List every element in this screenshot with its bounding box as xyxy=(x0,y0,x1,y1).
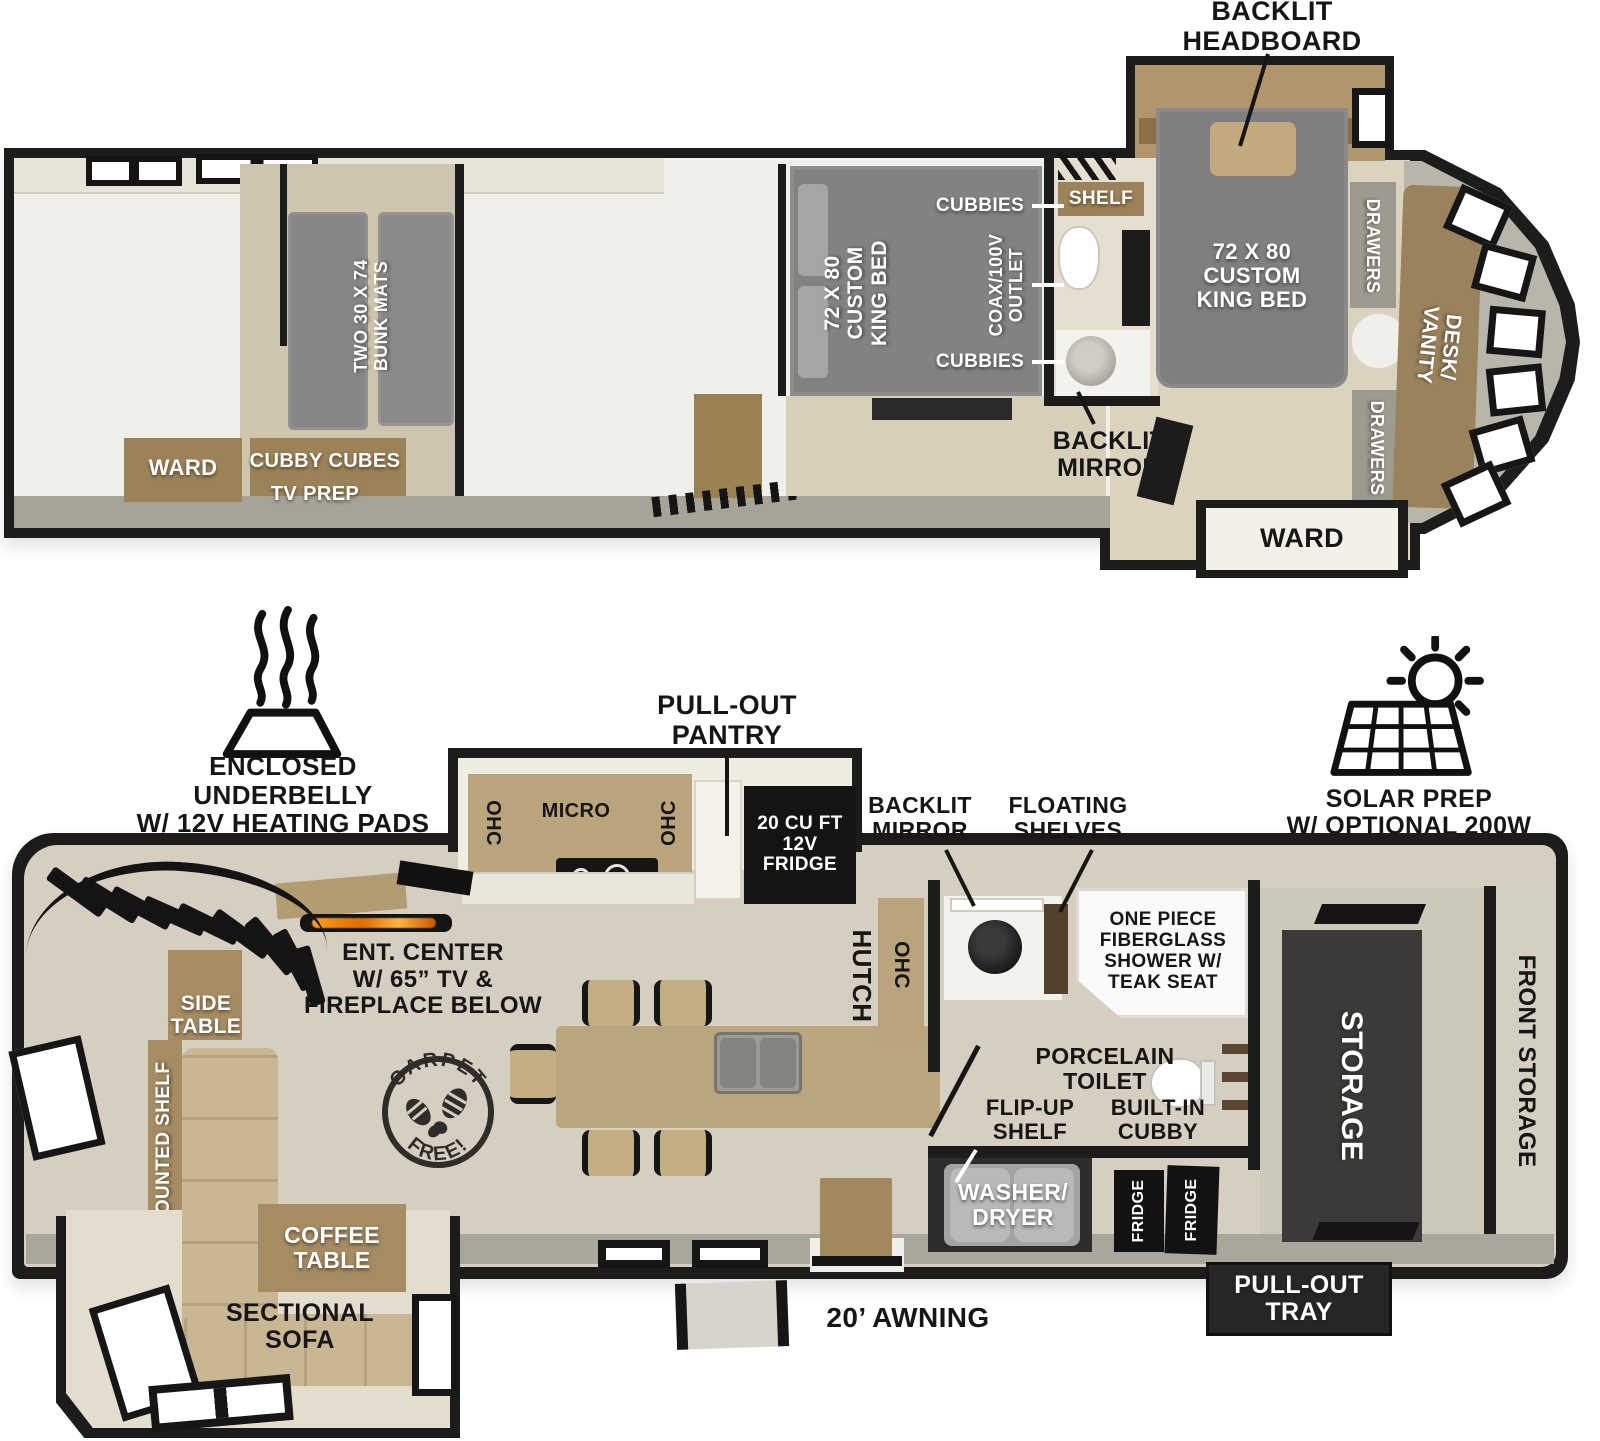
cubby-cubes-label: CUBBY CUBES xyxy=(232,446,418,476)
bunk-room-right-wall xyxy=(455,164,464,496)
floating-shelves xyxy=(1044,904,1068,994)
exterior-fridge-label: FRIDGE xyxy=(1129,1173,1149,1249)
entry-door-sill xyxy=(812,1256,902,1266)
dining-chair xyxy=(510,1044,556,1104)
window-icon xyxy=(1352,88,1392,148)
drawers-top-label: DRAWERS xyxy=(1359,186,1385,306)
dining-chair xyxy=(654,1130,712,1176)
hatch-shelf-icon xyxy=(1058,152,1116,180)
master-bed-label: 72 X 80 CUSTOM KING BED xyxy=(1172,228,1332,324)
dining-chair xyxy=(582,1130,640,1176)
floating-shelves-label: FLOATING SHELVES xyxy=(995,788,1141,848)
rear-bed-label: 72 X 80 CUSTOM KING BED xyxy=(814,218,898,368)
window-icon xyxy=(692,1240,768,1268)
window-icon xyxy=(1486,363,1547,417)
carpet-free-stamp: CARPET FREE! xyxy=(378,1052,498,1172)
upper-bath-bottom-wall xyxy=(1044,396,1160,406)
bath-vessel-sink xyxy=(968,920,1022,974)
entry-steps xyxy=(675,1280,789,1350)
pantry-cabinet xyxy=(694,780,742,900)
pull-out-pantry-label: PULL-OUT PANTRY xyxy=(627,688,827,754)
master-bed-pillow xyxy=(1210,122,1296,176)
storage-vent xyxy=(1312,1222,1419,1240)
cubbies-top-label: CUBBIES xyxy=(930,194,1030,218)
island-sink-basin xyxy=(720,1038,756,1088)
rv-floorplan-canvas: TWO 30 X 74 BUNK MATS WARD CUBBY CUBES T… xyxy=(0,0,1600,1441)
upper-toilet xyxy=(1058,226,1100,290)
tv-bench xyxy=(872,398,1012,420)
upper-bath-cabinet xyxy=(1122,230,1150,326)
awning-label: 20’ AWNING xyxy=(788,1298,1028,1338)
cubbies-bottom-label: CUBBIES xyxy=(930,350,1030,374)
master-ward-label: WARD xyxy=(1206,510,1398,568)
sectional-sofa-label: SECTIONAL SOFA xyxy=(200,1296,400,1358)
solar-prep-icon xyxy=(1316,636,1492,788)
pull-out-tray-label: PULL-OUT TRAY xyxy=(1208,1266,1390,1332)
hutch-label: HUTCH xyxy=(846,911,878,1041)
bunk-ward-label: WARD xyxy=(126,448,240,488)
entry-door xyxy=(820,1178,892,1258)
side-table-label: SIDE TABLE xyxy=(158,988,254,1042)
coffee-table-label: COFFEE TABLE xyxy=(262,1216,402,1280)
window-icon xyxy=(598,1240,670,1268)
exterior-fridge-label: FRIDGE xyxy=(1182,1172,1202,1248)
bunk-room-left-wall xyxy=(280,164,287,346)
bath-left-wall xyxy=(928,880,940,1072)
dining-chair xyxy=(582,980,640,1026)
upper-bath-left-wall xyxy=(1044,156,1054,406)
porcelain-toilet-label: PORCELAIN TOILET xyxy=(1022,1040,1188,1098)
boot-print-icon xyxy=(401,1094,446,1142)
hutch-ohc-label: OHC xyxy=(889,930,913,1000)
fireplace-flames xyxy=(312,918,436,928)
window-icon xyxy=(86,156,182,186)
micro-label: MICRO xyxy=(526,798,626,824)
storage-vent xyxy=(1314,904,1426,924)
ohc-right-label: OHC xyxy=(657,792,681,854)
backlit-headboard-label: BACKLIT HEADBOARD xyxy=(1172,0,1372,54)
heating-pads-icon xyxy=(212,604,352,762)
window-icon xyxy=(412,1294,458,1396)
kitchen-counter xyxy=(460,872,696,906)
ohc-left-label: OHC xyxy=(481,792,505,854)
fridge-12v-label: 20 CU FT 12V FRIDGE xyxy=(744,792,856,898)
built-in-cubby-label: BUILT-IN CUBBY xyxy=(1086,1092,1230,1148)
ent-center-label: ENT. CENTER W/ 65” TV & FIREPLACE BELOW xyxy=(298,930,548,1030)
front-storage-wall xyxy=(1484,886,1496,1234)
shower-label: ONE PIECE FIBERGLASS SHOWER W/ TEAK SEAT xyxy=(1080,896,1246,1008)
bath-bottom-wall xyxy=(928,1146,1260,1158)
backlit-mirror xyxy=(950,898,1044,912)
storage-label: STORAGE xyxy=(1332,976,1372,1196)
coax-outlet-label: COAX/100V OUTLET xyxy=(981,224,1033,346)
dining-chair xyxy=(654,980,712,1026)
stairs xyxy=(694,394,762,498)
underbelly-label: ENCLOSED UNDERBELLY W/ 12V HEATING PADS xyxy=(118,764,448,826)
island-sink-basin xyxy=(760,1038,796,1088)
rear-bedroom-wall xyxy=(778,164,786,396)
flip-up-shelf-label: FLIP-UP SHELF xyxy=(958,1092,1102,1148)
tv-prep-label: TV PREP xyxy=(240,480,390,508)
shelf-label: SHELF xyxy=(1058,184,1144,214)
washer-dryer-label: WASHER/ DRYER xyxy=(940,1172,1086,1238)
drawers-bottom-label: DRAWERS xyxy=(1363,390,1389,506)
built-in-cubby-shelf xyxy=(1222,1044,1248,1054)
bunk-mats-label: TWO 30 X 74 BUNK MATS xyxy=(345,211,399,421)
backlit-mirror-label: BACKLIT MIRROR xyxy=(850,788,990,848)
front-storage-label: FRONT STORAGE xyxy=(1511,939,1541,1183)
built-in-cubby-shelf xyxy=(1222,1072,1248,1082)
bath-right-wall xyxy=(1248,880,1260,1170)
window-icon xyxy=(1486,306,1546,359)
upper-bath-sink xyxy=(1066,336,1116,386)
